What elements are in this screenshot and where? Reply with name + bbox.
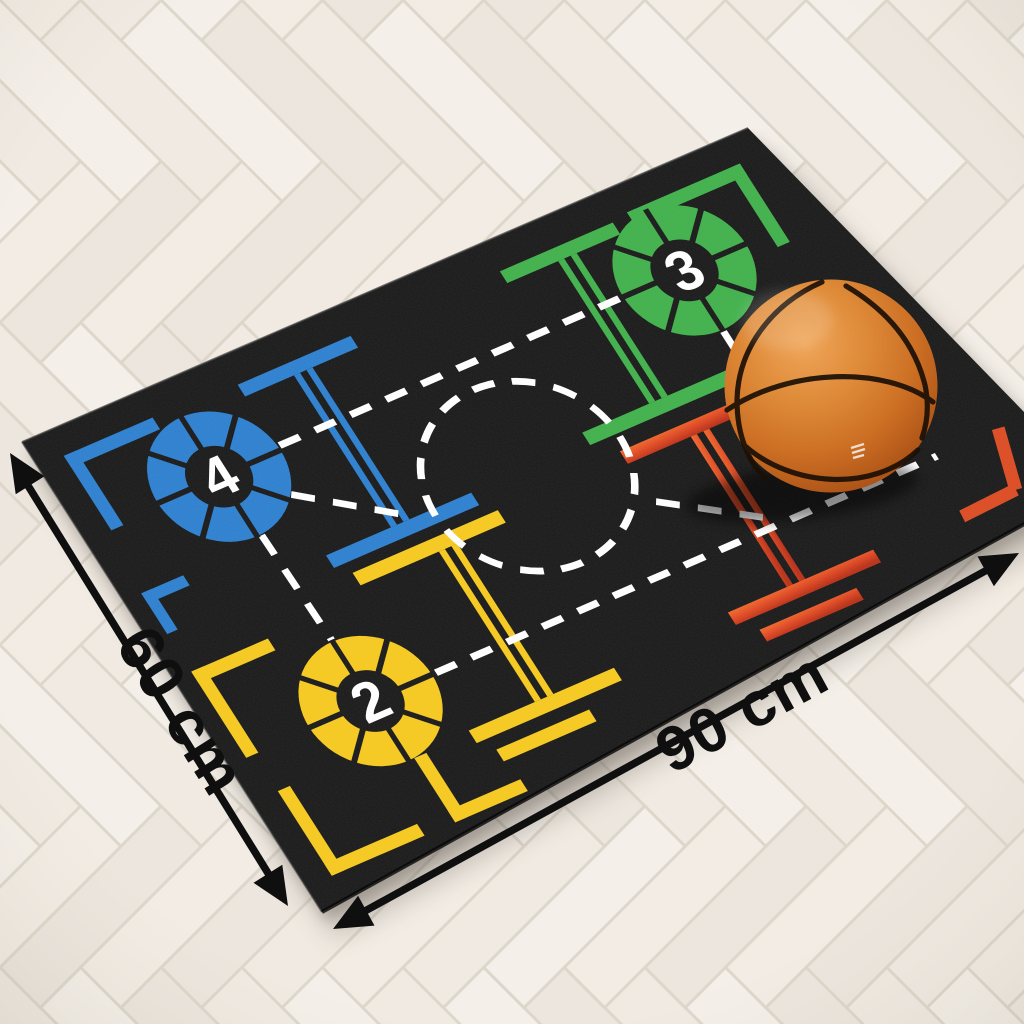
ball-highlight	[741, 290, 833, 350]
product-photo: 4 3	[0, 0, 1024, 1024]
